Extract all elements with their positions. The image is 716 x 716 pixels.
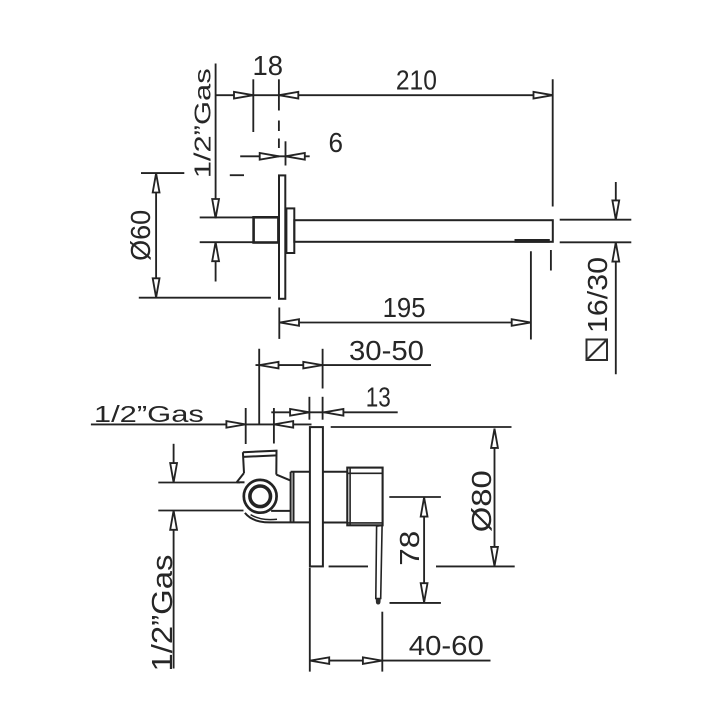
svg-text:1/2”Gas: 1/2”Gas [94, 401, 204, 427]
svg-text:16/30: 16/30 [582, 257, 613, 333]
svg-text:195: 195 [383, 292, 426, 323]
svg-text:40-60: 40-60 [409, 630, 484, 661]
svg-text:13: 13 [366, 382, 391, 413]
svg-text:78: 78 [394, 531, 425, 566]
svg-text:Ø60: Ø60 [125, 210, 156, 261]
svg-text:6: 6 [329, 127, 344, 158]
svg-text:Ø80: Ø80 [466, 470, 497, 532]
svg-text:1/2”Gas: 1/2”Gas [147, 555, 179, 672]
svg-text:30-50: 30-50 [349, 335, 424, 366]
svg-text:1/2”Gas: 1/2”Gas [190, 68, 216, 178]
svg-text:18: 18 [253, 50, 284, 81]
svg-text:210: 210 [396, 65, 437, 96]
